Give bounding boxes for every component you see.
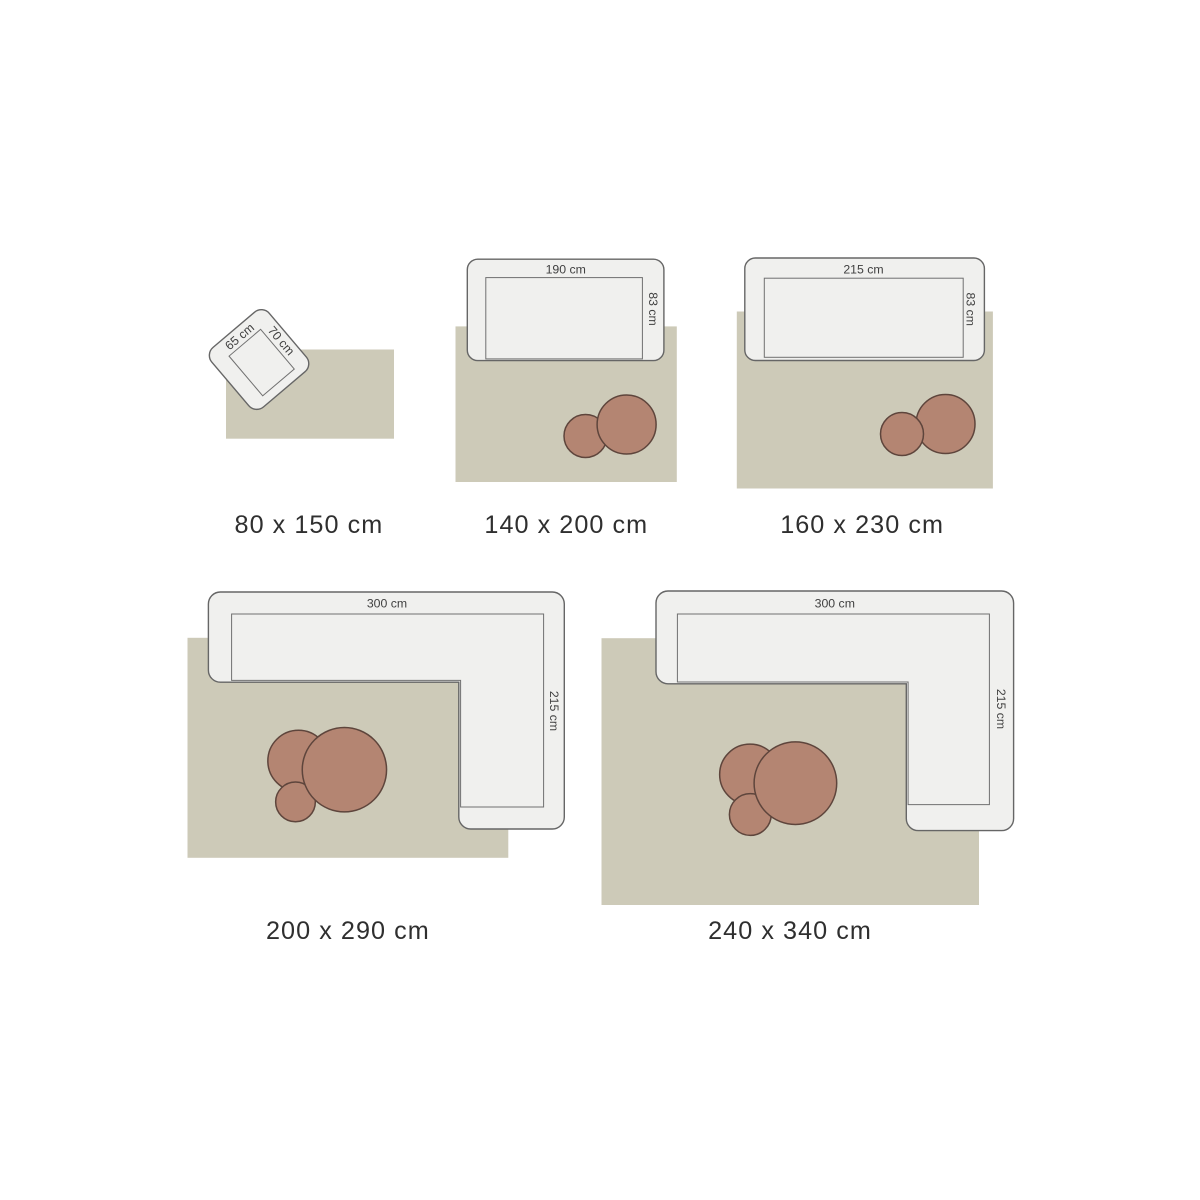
svg-text:140 x 200 cm: 140 x 200 cm [484, 511, 648, 539]
svg-text:200 x 290 cm: 200 x 290 cm [266, 917, 430, 945]
svg-text:215 cm: 215 cm [843, 263, 883, 277]
svg-text:80 x 150 cm: 80 x 150 cm [235, 511, 384, 539]
svg-text:240 x 340 cm: 240 x 340 cm [708, 917, 872, 945]
svg-text:300 cm: 300 cm [367, 597, 407, 611]
svg-text:160 x 230 cm: 160 x 230 cm [780, 511, 944, 539]
svg-text:215 cm: 215 cm [994, 689, 1008, 729]
svg-text:190 cm: 190 cm [546, 263, 586, 277]
svg-text:83 cm: 83 cm [964, 293, 978, 327]
svg-text:83 cm: 83 cm [646, 292, 660, 326]
svg-text:300 cm: 300 cm [815, 597, 855, 611]
svg-text:215 cm: 215 cm [547, 691, 561, 731]
